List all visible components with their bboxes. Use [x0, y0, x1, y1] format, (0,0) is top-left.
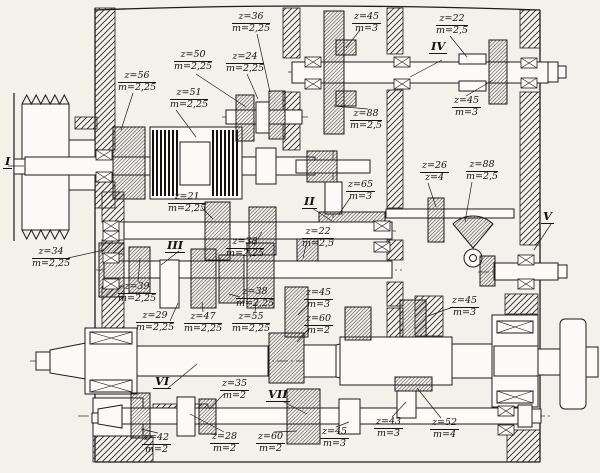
module: m=3: [349, 191, 372, 202]
gear-label-z45-bottom: z=45m=3: [320, 427, 349, 449]
module: m=2: [145, 444, 168, 455]
gear-label-z47: z=47m=2,25: [184, 312, 222, 334]
gear-z29: [160, 260, 179, 308]
gear-label-z22-center: z=22m=2,5: [302, 227, 334, 249]
gear-z24: [256, 102, 269, 133]
gear-label-z45-mid: z=45m=3: [304, 288, 333, 310]
module: m=2: [307, 325, 330, 336]
module: m=2,25: [174, 61, 212, 72]
gear-label-z38: z=38m=2,25: [226, 237, 264, 259]
gear-z26-z4: [428, 198, 444, 242]
clutch-hub: [180, 142, 210, 185]
gear-label-z60-bottom: z=60m=2: [256, 432, 285, 454]
gear-label-z45-upper-right: z=45m=3: [452, 96, 481, 118]
module: m=2,25: [170, 99, 208, 110]
gearbox-sectional-drawing: z=56m=2,25 z=50m=2,25 z=51m=2,25 z=24m=2…: [0, 0, 600, 473]
drawing-canvas: [0, 0, 600, 473]
shaft-numeral-i: I: [3, 156, 12, 169]
module: m=3: [355, 23, 378, 34]
module: m=2,5: [466, 171, 498, 182]
module: m=2,5: [302, 238, 334, 249]
gear-z60-bottom: [287, 389, 320, 444]
gear-z45-right: [489, 40, 507, 104]
gear-label-z88-worm: z=88m=2,5: [466, 160, 498, 182]
gear-label-z29: z=29m=2,25: [136, 311, 174, 333]
shaft-numeral-vii: VII: [266, 389, 290, 402]
teeth-count-worm: z=4: [425, 172, 444, 183]
gear-label-z34: z=34m=2,25: [32, 247, 70, 269]
gear-label-z52: z=52m=4: [430, 418, 459, 440]
module: m=2,25: [232, 23, 270, 34]
gear-z22: [459, 54, 486, 64]
module: m=2,25: [232, 323, 270, 334]
gear-label-z51: z=51m=2,25: [170, 88, 208, 110]
module: m=2,25: [226, 63, 264, 74]
gear-label-z35: z=35m=2: [220, 379, 249, 401]
module: m=3: [453, 307, 476, 318]
gear-z56: [113, 127, 145, 199]
gear-z52: [395, 377, 432, 391]
gear-label-z45-right-mid: z=45m=3: [450, 296, 479, 318]
module: m=2,5: [350, 120, 382, 131]
module: m=2,25: [32, 258, 70, 269]
shaft-numeral-iv: IV: [429, 41, 447, 54]
gear-label-z43: z=43m=3: [374, 417, 403, 439]
gear-label-z42: z=42m=2: [142, 433, 171, 455]
gear-label-z50: z=50m=2,25: [174, 50, 212, 72]
feed-rod: [386, 209, 514, 218]
gear-label-z38-lower: z=38m=2,25: [236, 287, 274, 309]
gear-label-z55: z=55m=2,25: [232, 312, 270, 334]
gear-z47: [191, 249, 216, 308]
module: m=2,25: [118, 82, 156, 93]
gear-label-z22-top: z=22m=2,5: [436, 14, 468, 36]
gear-label-z56: z=56m=2,25: [118, 71, 156, 93]
module: m=2,5: [436, 25, 468, 36]
gear-label-z36: z=36m=2,25: [232, 12, 270, 34]
clutch-disc-pack-left: [153, 130, 177, 196]
clutch-disc-pack-right: [213, 130, 237, 196]
module: m=2,25: [136, 322, 174, 333]
bevel-gear: [307, 151, 337, 182]
module: m=4: [433, 429, 456, 440]
bevel-gear-v: [480, 256, 495, 286]
module: m=3: [323, 438, 346, 449]
gear-label-z24: z=24m=2,25: [226, 52, 264, 74]
module: m=3: [377, 428, 400, 439]
shaft-numeral-v: V: [541, 211, 554, 224]
gear-label-z65: z=65m=3: [346, 180, 375, 202]
module: m=2: [259, 443, 282, 454]
gear-label-z45-top: z=45m=3: [352, 12, 381, 34]
shaft-numeral-ii: II: [302, 196, 317, 209]
spindle-flange: [560, 319, 586, 409]
module: m=3: [307, 299, 330, 310]
gear-label-z26-z4: z=26z=4: [420, 161, 449, 183]
gear-z45-right-mid: [400, 300, 426, 337]
gear-label-z28: z=28m=2: [210, 432, 239, 454]
gear-label-z88-top: z=88m=2,5: [350, 109, 382, 131]
gear-label-z39: z=39m=2,25: [118, 282, 156, 304]
module: m=2: [223, 390, 246, 401]
gear-z88-top: [324, 11, 344, 134]
gear-z28-b: [177, 397, 195, 436]
module: m=2,25: [118, 293, 156, 304]
module: m=2: [213, 443, 236, 454]
module: m=2,25: [236, 298, 274, 309]
module: m=2,25: [168, 203, 206, 214]
module: m=2,25: [226, 248, 264, 259]
gear-label-z60-mid: z=60m=2: [304, 314, 333, 336]
shaft-numeral-vi: VI: [153, 376, 171, 389]
module: m=3: [455, 107, 478, 118]
gear-z36: [269, 91, 285, 139]
module: m=2,25: [184, 323, 222, 334]
shaft-numeral-iii: III: [165, 240, 185, 253]
gear-above-spindle: [345, 307, 371, 340]
gear-z43: [397, 391, 416, 418]
gear-label-z21: z=21m=2,25: [168, 192, 206, 214]
